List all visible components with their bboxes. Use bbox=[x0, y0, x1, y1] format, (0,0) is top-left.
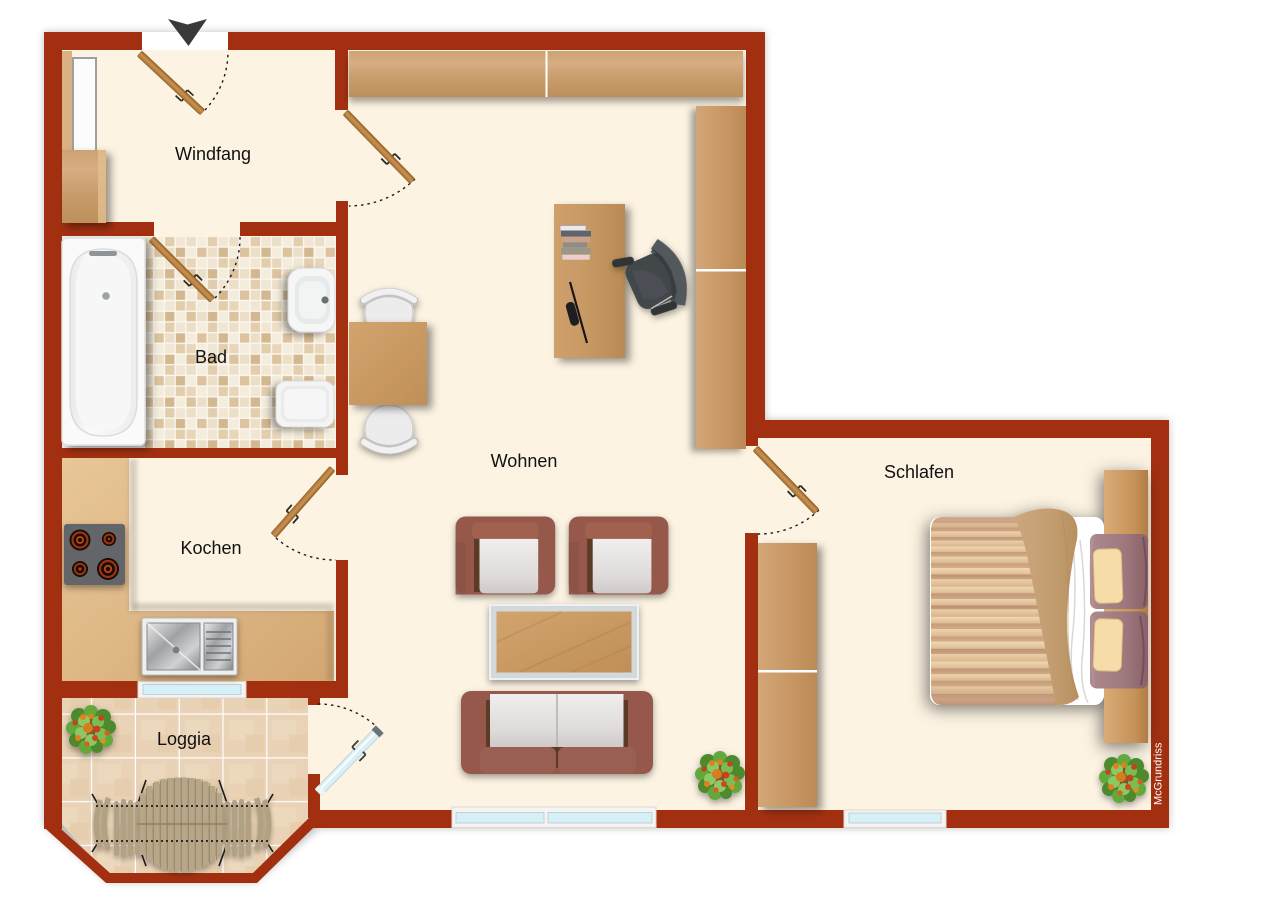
svg-text:Wohnen: Wohnen bbox=[491, 451, 558, 471]
svg-text:Bad: Bad bbox=[195, 347, 227, 367]
svg-text:Loggia: Loggia bbox=[157, 729, 212, 749]
svg-text:McGrundriss: McGrundriss bbox=[1153, 742, 1165, 805]
svg-text:Windfang: Windfang bbox=[175, 144, 251, 164]
svg-text:Kochen: Kochen bbox=[180, 538, 241, 558]
svg-text:Schlafen: Schlafen bbox=[884, 462, 954, 482]
